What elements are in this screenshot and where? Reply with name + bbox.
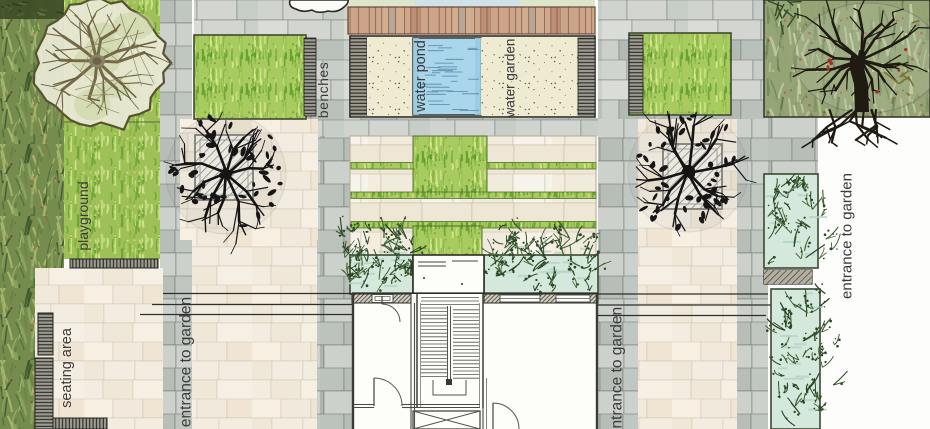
- svg-text:entrance to garden: entrance to garden: [609, 307, 626, 429]
- svg-text:benches: benches: [315, 62, 331, 118]
- svg-text:water garden: water garden: [503, 39, 518, 119]
- svg-text:entrance to garden: entrance to garden: [178, 297, 195, 427]
- svg-text:entrance to garden: entrance to garden: [839, 173, 856, 299]
- svg-text:seating area: seating area: [59, 327, 75, 408]
- svg-text:playground: playground: [75, 181, 91, 250]
- svg-text:water pond: water pond: [413, 40, 429, 113]
